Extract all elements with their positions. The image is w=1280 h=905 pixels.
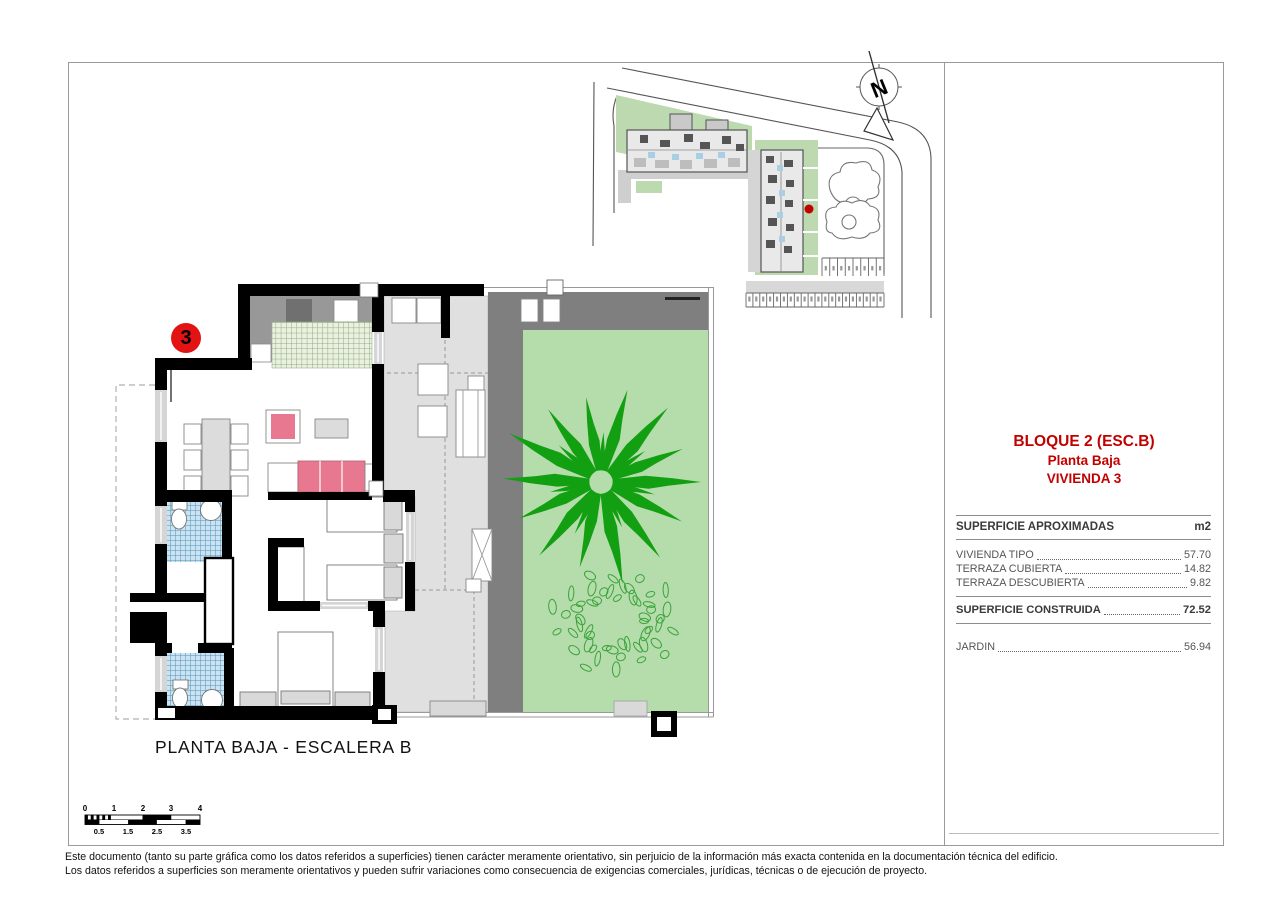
scale-bar [85, 815, 200, 825]
area-row-value: 57.70 [1184, 548, 1211, 562]
site-block2 [748, 140, 818, 275]
coffee-table [315, 419, 348, 438]
garden-pillar-core [657, 717, 671, 731]
site-block1 [616, 95, 752, 203]
scale-tick: 3 [169, 804, 173, 813]
garden-gate [547, 280, 563, 295]
armchair [271, 414, 295, 439]
disclaimer: Este documento (tanto su parte gráfica c… [65, 851, 1225, 878]
panel-titles: BLOQUE 2 (ESC.B) Planta Baja VIVIENDA 3 [945, 432, 1223, 488]
north-arrow-icon: N [856, 51, 902, 140]
plan-title: PLANTA BAJA - ESCALERA B [155, 737, 412, 758]
bathroom-1 [167, 500, 222, 563]
dining-set [184, 419, 248, 496]
garden-row: JARDIN 56.94 [956, 640, 1211, 654]
scale-tick: 2.5 [152, 827, 162, 836]
areas-header: SUPERFICIE APROXIMADAS [956, 521, 1114, 533]
north-label: N [867, 74, 891, 103]
floor-plan [116, 280, 714, 737]
garden [523, 330, 708, 712]
garden-vent [665, 297, 700, 300]
nightstand [384, 534, 403, 563]
area-row: TERRAZA DESCUBIERTA 9.82 [956, 576, 1211, 590]
unit-label: VIVIENDA 3 [945, 470, 1223, 488]
garden-value: 56.94 [1184, 640, 1211, 654]
area-row-label: TERRAZA CUBIERTA [956, 562, 1062, 576]
scale-tick: 2 [141, 804, 145, 813]
scale-tick: 3.5 [181, 827, 191, 836]
scale-tick: 4 [198, 804, 202, 813]
property-boundary [116, 385, 155, 719]
unit-location-dot [805, 205, 814, 214]
areas-table: SUPERFICIE APROXIMADAS m2 VIVIENDA TIPO … [956, 515, 1211, 654]
side-table [240, 692, 276, 708]
toilet [172, 509, 187, 529]
areas-unit-header: m2 [1194, 521, 1211, 533]
garden-label: JARDIN [956, 640, 995, 654]
area-row-value: 9.82 [1190, 576, 1211, 590]
bathroom-2 [167, 653, 224, 711]
scale-tick: 0 [83, 804, 87, 813]
area-total-label: SUPERFICIE CONSTRUIDA [956, 603, 1101, 617]
area-total-row: SUPERFICIE CONSTRUIDA 72.52 [956, 603, 1211, 617]
site-plan: N [593, 51, 931, 318]
area-total-value: 72.52 [1183, 603, 1211, 617]
info-panel: BLOQUE 2 (ESC.B) Planta Baja VIVIENDA 3 … [945, 62, 1223, 844]
pergola-band-vertical [488, 292, 523, 712]
area-row: VIVIENDA TIPO 57.70 [956, 548, 1211, 562]
sofa [298, 461, 365, 492]
area-row: TERRAZA CUBIERTA 14.82 [956, 562, 1211, 576]
garden-hedge [614, 701, 647, 716]
area-row-label: TERRAZA DESCUBIERTA [956, 576, 1085, 590]
block-title: BLOQUE 2 (ESC.B) [945, 432, 1223, 452]
site-pool-area [818, 148, 884, 274]
closet [274, 547, 304, 603]
area-row-label: VIVIENDA TIPO [956, 548, 1034, 562]
floor-label: Planta Baja [945, 452, 1223, 470]
side-table [335, 692, 370, 708]
panel-bottom-line [949, 833, 1219, 834]
unit-marker-number: 3 [180, 327, 191, 350]
plan-sheet: N [0, 0, 1280, 905]
toilet [173, 688, 188, 708]
kitchen-tiles [272, 322, 372, 368]
scale-tick: 0.5 [94, 827, 104, 836]
scale-tick: 1 [112, 804, 116, 813]
sink [201, 500, 222, 521]
area-row-value: 14.82 [1184, 562, 1211, 576]
kitchen [250, 296, 372, 368]
scale-tick: 1.5 [123, 827, 133, 836]
disclaimer-line-2: Los datos referidos a superficies son me… [65, 865, 1225, 879]
disclaimer-line-1: Este documento (tanto su parte gráfica c… [65, 851, 1225, 865]
wardrobe [205, 558, 233, 644]
unit-marker-badge: 3 [171, 323, 201, 353]
